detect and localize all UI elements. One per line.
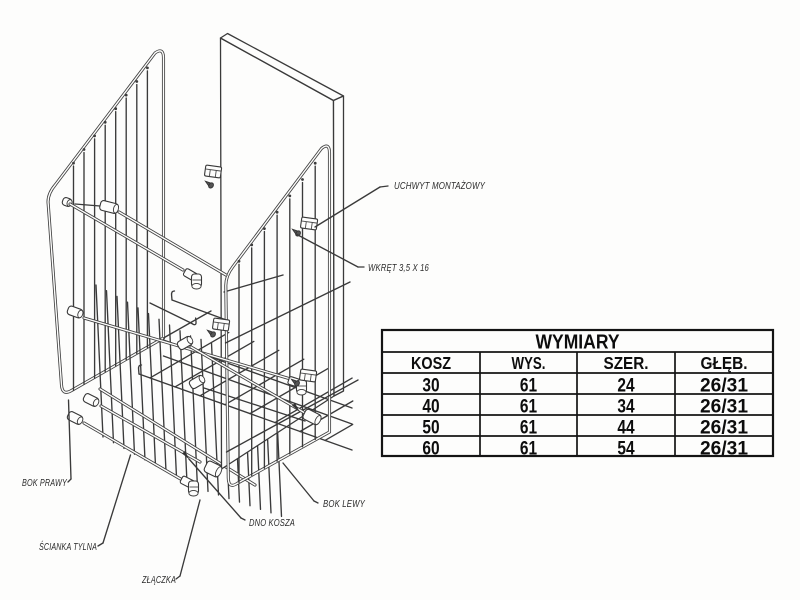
svg-text:54: 54 bbox=[617, 438, 634, 460]
svg-text:26/31: 26/31 bbox=[700, 396, 748, 418]
svg-text:UCHWYT MONTAŻOWY: UCHWYT MONTAŻOWY bbox=[394, 180, 486, 192]
svg-text:26/31: 26/31 bbox=[700, 375, 748, 397]
svg-text:WYS.: WYS. bbox=[512, 353, 546, 373]
svg-text:WKRĘT 3,5 X 16: WKRĘT 3,5 X 16 bbox=[368, 263, 429, 274]
svg-text:40: 40 bbox=[422, 396, 439, 418]
svg-text:BOK PRAWY: BOK PRAWY bbox=[22, 478, 68, 489]
svg-text:61: 61 bbox=[520, 438, 537, 460]
svg-text:KOSZ: KOSZ bbox=[411, 353, 451, 373]
svg-text:WYMIARY: WYMIARY bbox=[536, 332, 621, 354]
svg-text:ZŁĄCZKA: ZŁĄCZKA bbox=[141, 575, 176, 586]
svg-text:34: 34 bbox=[617, 396, 634, 418]
svg-text:61: 61 bbox=[520, 396, 537, 418]
svg-text:60: 60 bbox=[422, 438, 439, 460]
svg-text:26/31: 26/31 bbox=[700, 438, 748, 460]
svg-text:61: 61 bbox=[520, 417, 537, 439]
svg-text:GŁĘB.: GŁĘB. bbox=[701, 353, 748, 373]
svg-text:ŚCIANKA TYLNA: ŚCIANKA TYLNA bbox=[39, 540, 97, 553]
svg-text:SZER.: SZER. bbox=[604, 353, 649, 373]
svg-text:44: 44 bbox=[617, 417, 634, 439]
svg-text:30: 30 bbox=[422, 375, 439, 397]
svg-text:26/31: 26/31 bbox=[700, 417, 748, 439]
svg-text:50: 50 bbox=[422, 417, 439, 439]
svg-text:24: 24 bbox=[617, 375, 634, 397]
svg-text:61: 61 bbox=[520, 375, 537, 397]
svg-text:DNO KOSZA: DNO KOSZA bbox=[249, 518, 295, 529]
svg-text:BOK LEWY: BOK LEWY bbox=[323, 499, 366, 510]
